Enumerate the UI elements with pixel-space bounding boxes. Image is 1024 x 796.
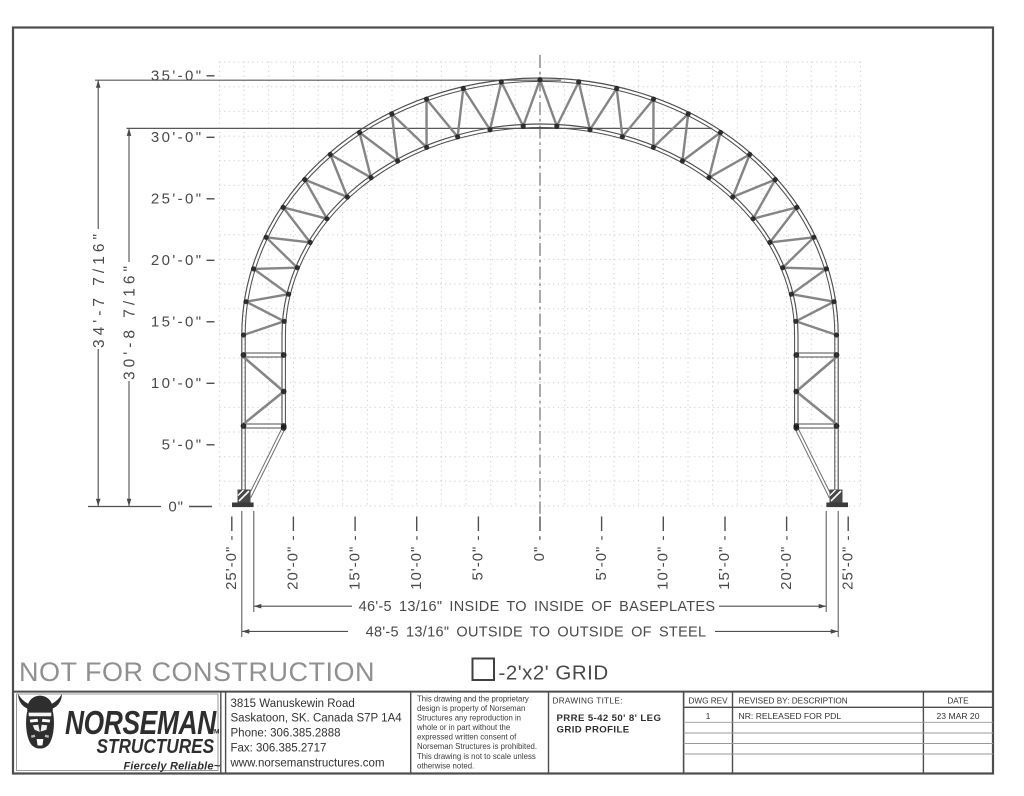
svg-text:10'-0" -: 10'-0" -	[408, 535, 425, 590]
svg-text:25'-0": 25'-0"	[151, 190, 204, 207]
svg-text:35'-0": 35'-0"	[151, 67, 204, 84]
svg-text:expressed written consent of: expressed written consent of	[417, 733, 517, 742]
svg-text:Structures any reproduction in: Structures any reproduction in	[417, 714, 521, 723]
svg-text:www.norsemanstructures.com: www.norsemanstructures.com	[230, 757, 385, 769]
svg-text:NR: RELEASED FOR PDL: NR: RELEASED FOR PDL	[739, 711, 842, 721]
svg-text:5'-0" -: 5'-0" -	[593, 534, 610, 580]
svg-text:20'-0": 20'-0"	[151, 252, 204, 269]
svg-text:STRUCTURES: STRUCTURES	[97, 736, 215, 759]
svg-text:3815 Wanuskewin Road: 3815 Wanuskewin Road	[231, 698, 355, 710]
svg-text:otherwise noted.: otherwise noted.	[417, 761, 474, 770]
svg-text:15'-0": 15'-0"	[151, 313, 204, 330]
svg-text:10'-0" -: 10'-0" -	[655, 535, 672, 590]
svg-text:DRAWING TITLE:: DRAWING TITLE:	[553, 697, 623, 706]
svg-text:30'-8 7/16": 30'-8 7/16"	[122, 262, 139, 380]
svg-text:20'-0" -: 20'-0" -	[778, 535, 795, 590]
svg-text:25'-0" -: 25'-0" -	[839, 534, 856, 589]
svg-text:PRRE 5-42 50' 8' LEG: PRRE 5-42 50' 8' LEG	[557, 713, 662, 724]
svg-text:23 MAR 20: 23 MAR 20	[937, 711, 980, 721]
svg-text:20'-0" -: 20'-0" -	[285, 535, 302, 590]
svg-text:GRID PROFILE: GRID PROFILE	[557, 725, 630, 736]
svg-text:DWG REV: DWG REV	[688, 696, 728, 705]
svg-text:5'-0" -: 5'-0" -	[470, 534, 487, 580]
svg-text:Phone: 306.385.2888: Phone: 306.385.2888	[231, 728, 341, 740]
svg-text:Saskatoon, SK. Canada S7P 1A4: Saskatoon, SK. Canada S7P 1A4	[231, 713, 403, 725]
svg-text:15'-0" -: 15'-0" -	[346, 535, 363, 590]
svg-text:5'-0": 5'-0"	[162, 436, 204, 453]
svg-text:This drawing and the proprieta: This drawing and the proprietary	[417, 695, 529, 704]
svg-text:30'-0": 30'-0"	[151, 129, 204, 146]
svg-text:Norseman Structures is prohibi: Norseman Structures is prohibited.	[417, 742, 537, 751]
svg-text:Fax: 306.385.2717: Fax: 306.385.2717	[231, 743, 327, 755]
svg-text:15'-0" -: 15'-0" -	[716, 534, 733, 589]
svg-text:48'-5 13/16" OUTSIDE TO OUTSID: 48'-5 13/16" OUTSIDE TO OUTSIDE OF STEEL	[366, 624, 707, 640]
svg-text:REVISED BY: DESCRIPTION: REVISED BY: DESCRIPTION	[739, 696, 848, 705]
svg-text:whole or in part without the: whole or in part without the	[416, 723, 510, 732]
svg-text:0": 0"	[168, 499, 184, 516]
svg-text:46'-5 13/16" INSIDE TO INSIDE: 46'-5 13/16" INSIDE TO INSIDE OF BASEPLA…	[359, 599, 716, 615]
svg-text:Fiercely Reliable~: Fiercely Reliable~	[124, 761, 221, 773]
svg-text:This drawing is not to scale u: This drawing is not to scale unless	[417, 752, 536, 761]
svg-text:0" -: 0" -	[531, 535, 548, 562]
svg-text:25'-0" -: 25'-0" -	[223, 535, 240, 590]
svg-text:DATE: DATE	[947, 696, 969, 705]
svg-text:TM: TM	[210, 729, 219, 736]
svg-text:34'-7 7/16": 34'-7 7/16"	[91, 230, 108, 348]
svg-text:-2'x2' GRID: -2'x2' GRID	[499, 662, 609, 685]
svg-text:1: 1	[706, 711, 711, 721]
svg-text:10'-0": 10'-0"	[151, 375, 204, 392]
svg-text:design is property of Norseman: design is property of Norseman	[417, 704, 525, 713]
svg-text:NOT FOR CONSTRUCTION: NOT FOR CONSTRUCTION	[19, 657, 375, 687]
